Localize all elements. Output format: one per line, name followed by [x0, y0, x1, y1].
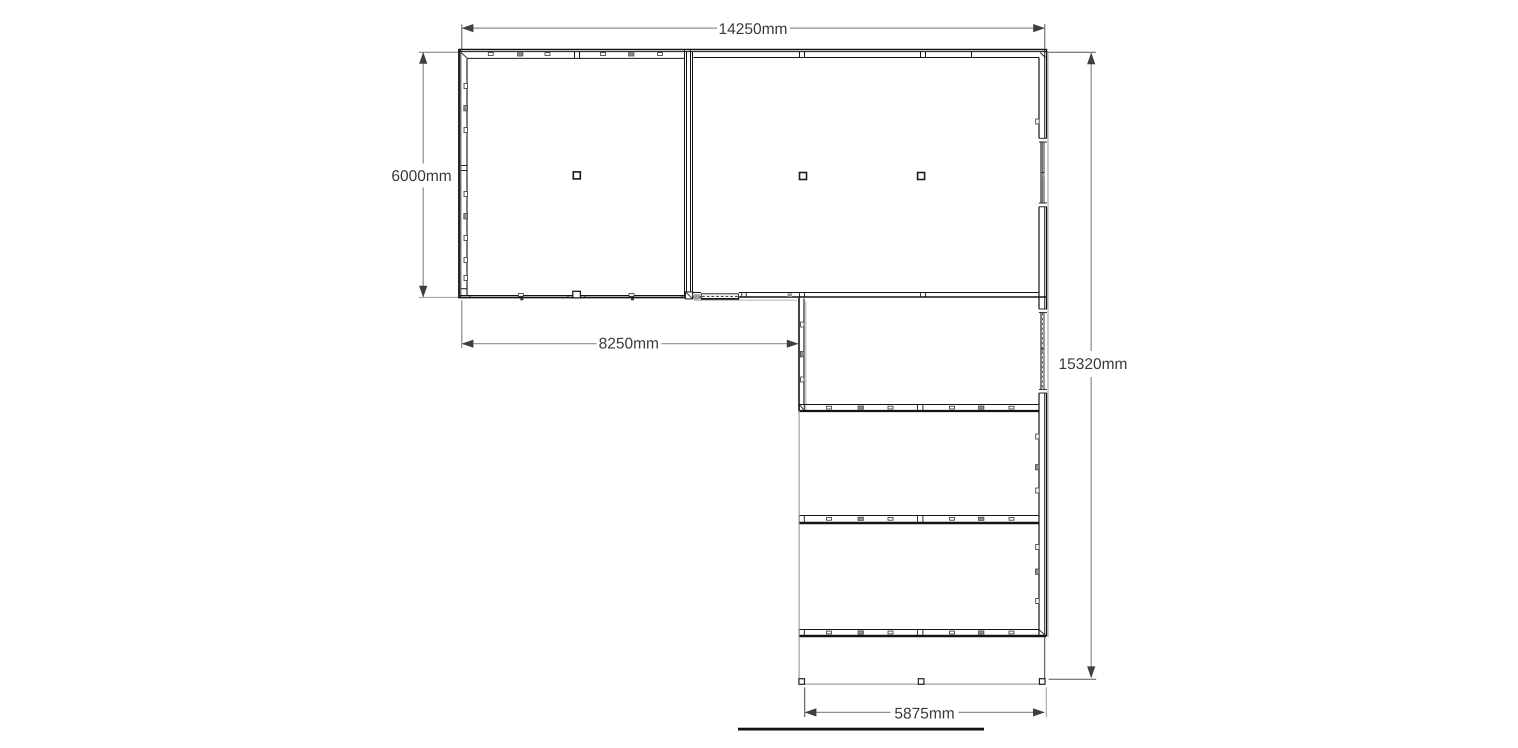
svg-text:8250mm: 8250mm [599, 336, 659, 353]
svg-text:6000mm: 6000mm [391, 168, 451, 185]
svg-text:5875mm: 5875mm [894, 706, 954, 723]
svg-text:15320mm: 15320mm [1059, 356, 1128, 373]
svg-text:14250mm: 14250mm [719, 21, 788, 38]
